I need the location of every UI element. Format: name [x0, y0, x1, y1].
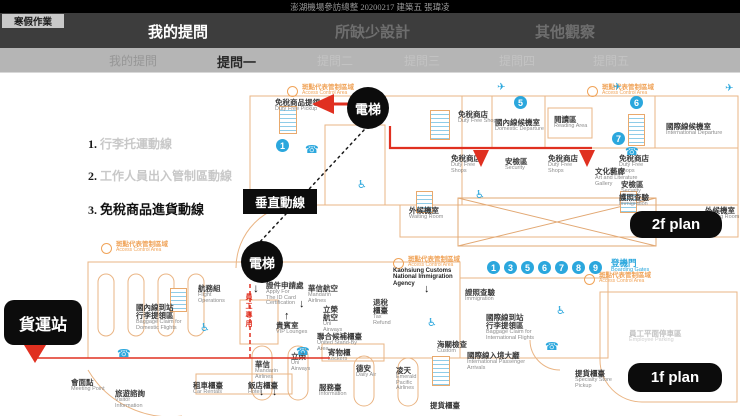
- vertical-circulation-badge: 垂直動線: [243, 189, 317, 214]
- phone-icon: ☎: [305, 145, 319, 156]
- area-label-customs-check: 海關檢查Custom: [437, 341, 467, 355]
- area-label-immigration: 護照查驗Immigration: [619, 194, 649, 208]
- boarding-gate-number: 1: [487, 261, 500, 274]
- up-arrow-icon: ↑: [284, 311, 290, 322]
- wheelchair-icon: ♿: [427, 318, 437, 329]
- area-label-visitor-information: 旅遊諮詢Visitor Information: [115, 390, 145, 409]
- airplane-icon: ✈: [613, 83, 621, 93]
- area-label-duty-free-shops: 免稅商店Duty Free Shops: [451, 155, 481, 174]
- area-label-duty-free-pickup: 免稅商品提領Duty Free Pickup: [275, 99, 320, 113]
- area-label-security: 安檢區Security: [505, 158, 528, 172]
- phone-icon: ☎: [625, 147, 639, 158]
- boarding-gate-number: 6: [538, 261, 551, 274]
- boarding-gate-number: 9: [589, 261, 602, 274]
- area-label-domestic-departure: 國內線候機室Domestic Departure: [495, 119, 544, 133]
- legend-dot-icon: [101, 243, 112, 254]
- stairs-icon: [432, 356, 450, 386]
- area-label-international-departure: 國際線候機室International Departure: [666, 123, 722, 137]
- area-label-daily-air: 德安Daily Air: [356, 365, 376, 379]
- area-label-vip-lounges: 貴賓室VIP Lounges: [276, 322, 307, 336]
- area-label-duty-free-shops: 免稅商店Duty Free Shops: [548, 155, 578, 174]
- wheelchair-icon: ♿: [475, 190, 485, 201]
- access-control-legend: 斑點代表管制區域 Access Control Area: [393, 256, 460, 269]
- area-label-tax-refund: 退稅 櫃臺Tax Refund: [373, 299, 391, 326]
- area-label-id-card: 證件申請處Apply For The ID Card Certification: [266, 282, 304, 307]
- area-label-pickup-counter: 提貨櫃臺: [430, 402, 460, 410]
- winter-homework-badge: 寒假作業: [2, 14, 64, 28]
- wheelchair-icon: ♿: [357, 180, 367, 191]
- phone-icon: ☎: [296, 347, 310, 358]
- area-label-specialty-pickup: 提貨櫃臺Specialty Store Pickup: [575, 370, 612, 389]
- area-label-meeting-point: 會面點Meeting Point: [71, 379, 105, 393]
- slide-penghu-airport: 澎湖機場參訪總整 20200217 建築五 張瑋凌 我的提問 所缺少設計 其他觀…: [0, 0, 740, 416]
- area-label-uni-airways: 立榮 航空Uni Airways: [323, 306, 342, 333]
- boarding-gate-number: 7: [555, 261, 568, 274]
- area-label-mandarin-counter: 華信Mandarin Airlines: [255, 361, 278, 380]
- elevator-badge-2f: 電梯: [347, 87, 389, 129]
- area-label-reading-area: 閱讀區Reading Area: [554, 116, 587, 130]
- down-arrow-icon: ↓: [272, 388, 277, 398]
- boarding-gate-number: 3: [504, 261, 517, 274]
- down-arrow-icon: ↓: [259, 388, 264, 398]
- airplane-icon: ✈: [497, 83, 505, 93]
- down-arrow-icon: ↓: [299, 299, 305, 310]
- cargo-station-badge: 貨運站: [4, 300, 82, 345]
- phone-icon: ☎: [545, 342, 559, 353]
- area-label-flight-operations: 航務組Flight Operations: [198, 285, 225, 304]
- area-label-immigration: 證照查驗Immigration: [465, 289, 495, 303]
- employee-lane-label: 員工專用: [243, 293, 253, 329]
- wheelchair-icon: ♿: [200, 323, 210, 334]
- phone-icon: ☎: [117, 349, 131, 360]
- stairs-icon: [430, 110, 450, 140]
- boarding-gate-number: 8: [572, 261, 585, 274]
- area-label-information-desk: 服務臺Information: [319, 384, 347, 398]
- area-label-car-rentals: 租車櫃臺Car Rentals: [193, 382, 223, 396]
- gate-number-circle: 7: [612, 132, 625, 145]
- legend-dot-icon: [584, 274, 595, 285]
- area-label-art-gallery: 文化藝廊Art and Literature Gallery: [595, 168, 638, 187]
- airplane-icon: ✈: [725, 84, 733, 94]
- area-label-emerald-pacific: 凌天Emerald Pacific Airlines: [396, 367, 416, 392]
- legend-dot-icon: [587, 86, 598, 97]
- area-label-employee-parking: 員工平面停車區Employee Parking: [629, 330, 682, 344]
- area-label-mandarin-airlines: 華信航空Mandarin Airlines: [308, 285, 338, 304]
- wheelchair-icon: ♿: [556, 306, 566, 317]
- area-label-customs-immigration-agency: Kaohsiung Customs National Immigration A…: [393, 268, 453, 287]
- plan-1f-badge: 1f plan: [628, 363, 722, 392]
- area-label-international-arrivals: 國際線入境大廳International Passenger Arrivals: [467, 352, 525, 371]
- plan-2f-badge: 2f plan: [630, 211, 722, 238]
- elevator-badge-1f: 電梯: [241, 241, 283, 283]
- access-control-legend: 斑點代表管制區域 Access Control Area: [287, 84, 354, 97]
- stairs-icon: [628, 114, 645, 146]
- legend-dot-icon: [287, 86, 298, 97]
- access-control-legend: 斑點代表管制區域 Access Control Area: [101, 241, 168, 254]
- boarding-gates-label: 登機門 Boarding Gates: [611, 259, 649, 274]
- area-label-international-baggage-claim: 國際線到站 行李提領區Baggage Claim for Internation…: [486, 314, 534, 341]
- area-label-domestic-baggage-claim: 國內線到站 行李提領區Baggage Claim for Domestic Fl…: [136, 304, 182, 331]
- down-arrow-icon: ↓: [253, 282, 259, 294]
- gate-number-circle: 6: [630, 96, 643, 109]
- boarding-gate-number: 5: [521, 261, 534, 274]
- area-label-waiting-room: 外候機室Waiting Room: [409, 207, 443, 221]
- area-label-lockers: 寄物櫃Lockers: [328, 349, 351, 363]
- gate-number-circle: 1: [276, 139, 289, 152]
- down-arrow-icon: ↓: [424, 284, 430, 295]
- gate-number-circle: 5: [514, 96, 527, 109]
